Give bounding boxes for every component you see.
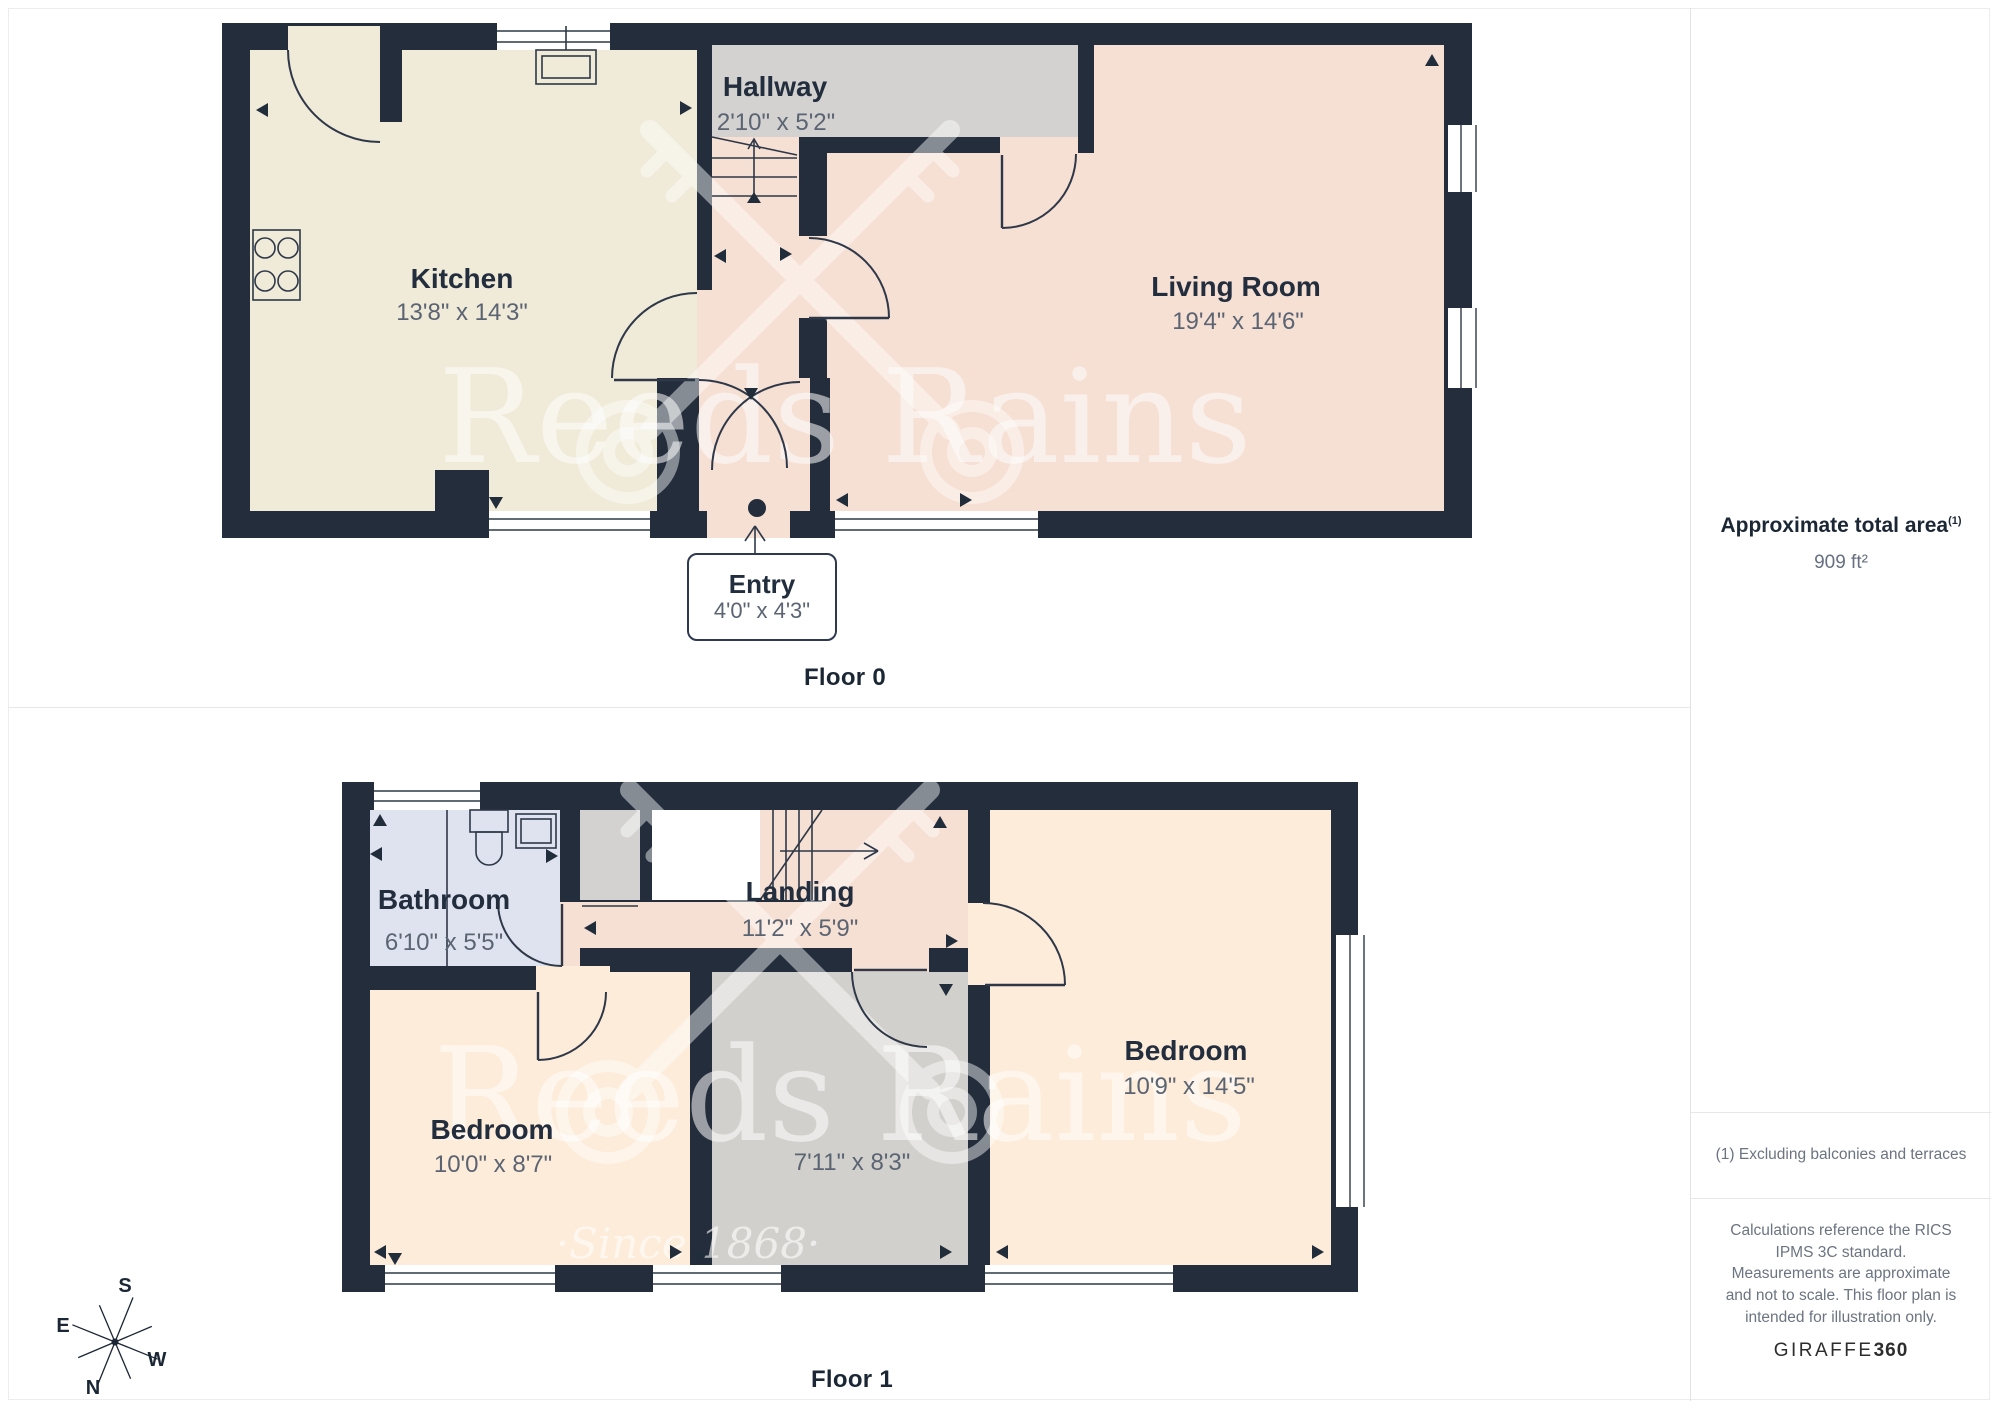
kitchen-exterior-door-gap bbox=[288, 26, 380, 50]
hallway-living-door-gap bbox=[1000, 137, 1078, 153]
landing-dims: 11'2" x 5'9" bbox=[742, 915, 859, 942]
floor1-caption: Floor 1 bbox=[702, 1366, 1002, 1394]
sidebar-divider bbox=[1690, 8, 1691, 1401]
bedroom-left-label: Bedroom bbox=[431, 1114, 554, 1145]
living-room-dims: 19'4" x 14'6" bbox=[1172, 308, 1304, 335]
entry-point-dot bbox=[748, 499, 766, 517]
compass-north-label: N bbox=[86, 1377, 100, 1399]
giraffe360-logo: GIRAFFE360 bbox=[1690, 1340, 1992, 1362]
total-area-title: Approximate total area bbox=[1720, 514, 1948, 537]
floor0-plan: Reeds Rains ·Since 1868· bbox=[222, 23, 1492, 590]
entry-label-box: Entry 4'0" x 4'3" bbox=[687, 553, 837, 641]
disclaimer-text: Calculations reference the RICS IPMS 3C … bbox=[1725, 1220, 1957, 1328]
compass-west-label: W bbox=[148, 1349, 167, 1371]
landing-label: Landing bbox=[746, 876, 855, 907]
compass-south-label: S bbox=[118, 1275, 131, 1297]
compass-east-label: E bbox=[56, 1315, 69, 1337]
giraffe360-logo-text: GIRAFFE bbox=[1774, 1340, 1874, 1361]
compass-icon: S E W N bbox=[56, 1275, 166, 1399]
brand-watermark-floor0: Reeds Rains bbox=[438, 341, 1251, 493]
kitchen-label: Kitchen bbox=[411, 263, 514, 294]
giraffe360-logo-suffix: 360 bbox=[1874, 1340, 1909, 1361]
bedroom-left-dims: 10'0" x 8'7" bbox=[434, 1151, 552, 1178]
center-room-door-gap bbox=[852, 948, 929, 972]
floorplan-page: { "colors": { "wall": "#232d3b", "kitche… bbox=[0, 0, 2000, 1414]
entry-label: Entry bbox=[729, 570, 795, 599]
bathroom-dims: 6'10" x 5'5" bbox=[385, 929, 503, 956]
hallway-label: Hallway bbox=[723, 71, 828, 102]
living-room-label: Living Room bbox=[1151, 271, 1321, 302]
kitchen-room bbox=[250, 50, 697, 378]
floor0-caption: Floor 0 bbox=[695, 664, 995, 692]
center-room-dims: 7'11" x 8'3" bbox=[794, 1149, 911, 1176]
total-area-heading: Approximate total area(1) bbox=[1690, 514, 1992, 538]
hallway-dims: 2'10" x 5'2" bbox=[717, 109, 835, 136]
bedroom-right-dims: 10'9" x 14'5" bbox=[1123, 1073, 1255, 1100]
sidebar-divider-top bbox=[1691, 1112, 1991, 1113]
area-footnote: (1) Excluding balconies and terraces bbox=[1700, 1146, 1982, 1164]
bathroom-label: Bathroom bbox=[378, 884, 510, 915]
sidebar-divider-bottom bbox=[1691, 1198, 1991, 1199]
total-area-value: 909 ft² bbox=[1690, 552, 1992, 574]
wall-stub bbox=[380, 50, 402, 122]
bedroom-right-label: Bedroom bbox=[1125, 1035, 1248, 1066]
total-area-footnote-ref: (1) bbox=[1948, 515, 1961, 527]
floor1-plan: Reeds Rains ·Since 1868· bbox=[342, 782, 1382, 1292]
bedroom-right-door-gap bbox=[968, 903, 990, 985]
entry-dims: 4'0" x 4'3" bbox=[714, 598, 810, 624]
entry-door-gap bbox=[707, 511, 790, 538]
kitchen-dims: 13'8" x 14'3" bbox=[396, 299, 528, 326]
tagline-watermark-floor1: ·Since 1868· bbox=[556, 1219, 821, 1268]
floor-section-divider bbox=[9, 707, 1690, 708]
